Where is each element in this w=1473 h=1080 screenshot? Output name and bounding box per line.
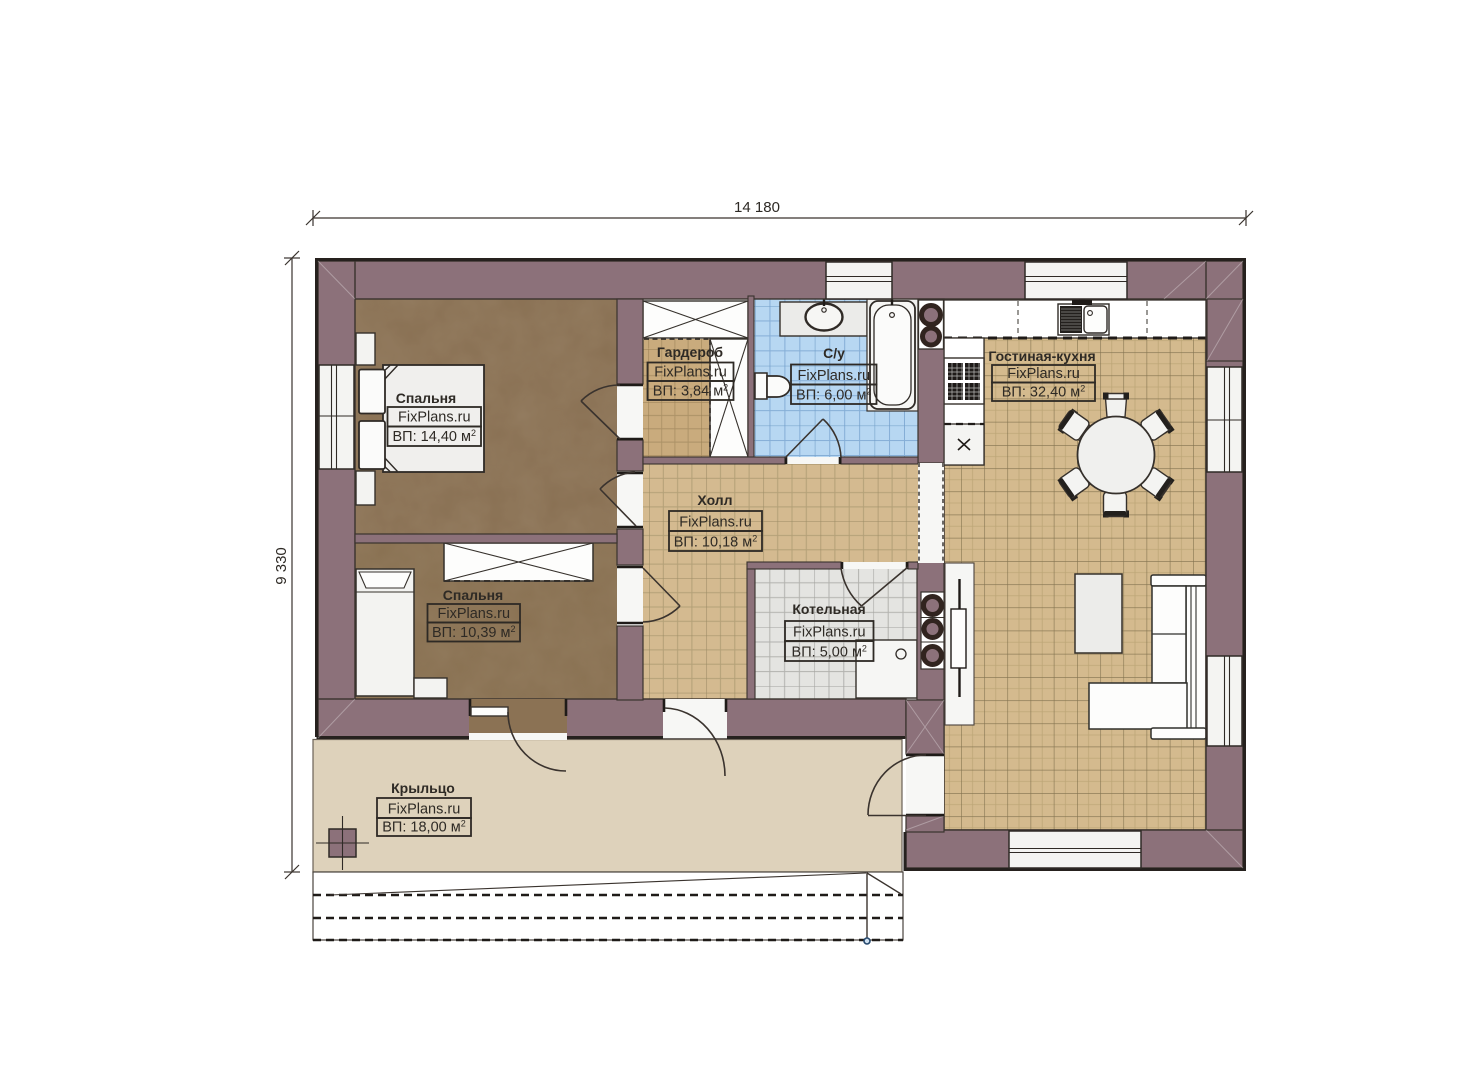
svg-text:Гостиная-кухня: Гостиная-кухня bbox=[988, 348, 1095, 364]
svg-text:С/у: С/у bbox=[823, 345, 845, 361]
svg-text:FixPlans.ru: FixPlans.ru bbox=[398, 410, 471, 426]
svg-text:FixPlans.ru: FixPlans.ru bbox=[1007, 366, 1080, 382]
svg-text:FixPlans.ru: FixPlans.ru bbox=[679, 515, 752, 531]
svg-text:FixPlans.ru: FixPlans.ru bbox=[388, 802, 461, 818]
svg-text:ВП: 6,00 м2: ВП: 6,00 м2 bbox=[796, 387, 871, 404]
svg-text:ВП: 3,84 м2: ВП: 3,84 м2 bbox=[653, 383, 728, 400]
svg-text:FixPlans.ru: FixPlans.ru bbox=[797, 368, 870, 384]
svg-text:Котельная: Котельная bbox=[792, 601, 865, 617]
svg-text:Крыльцо: Крыльцо bbox=[391, 780, 455, 796]
svg-text:ВП: 10,39 м2: ВП: 10,39 м2 bbox=[432, 624, 515, 641]
svg-text:14 180: 14 180 bbox=[734, 199, 780, 216]
svg-text:ВП: 32,40 м2: ВП: 32,40 м2 bbox=[1002, 384, 1085, 401]
svg-text:ВП: 5,00 м2: ВП: 5,00 м2 bbox=[792, 644, 867, 661]
svg-text:FixPlans.ru: FixPlans.ru bbox=[654, 365, 727, 381]
svg-text:ВП: 18,00 м2: ВП: 18,00 м2 bbox=[382, 819, 465, 836]
svg-text:Спальня: Спальня bbox=[396, 390, 456, 406]
svg-text:Спальня: Спальня bbox=[443, 587, 503, 603]
svg-text:FixPlans.ru: FixPlans.ru bbox=[437, 606, 510, 622]
svg-text:ВП: 10,18 м2: ВП: 10,18 м2 bbox=[674, 534, 757, 551]
svg-text:Холл: Холл bbox=[697, 492, 732, 508]
svg-text:Гардероб: Гардероб bbox=[657, 344, 724, 360]
svg-text:ВП: 14,40 м2: ВП: 14,40 м2 bbox=[393, 428, 476, 445]
svg-text:9 330: 9 330 bbox=[273, 547, 290, 585]
svg-text:FixPlans.ru: FixPlans.ru bbox=[793, 625, 866, 641]
